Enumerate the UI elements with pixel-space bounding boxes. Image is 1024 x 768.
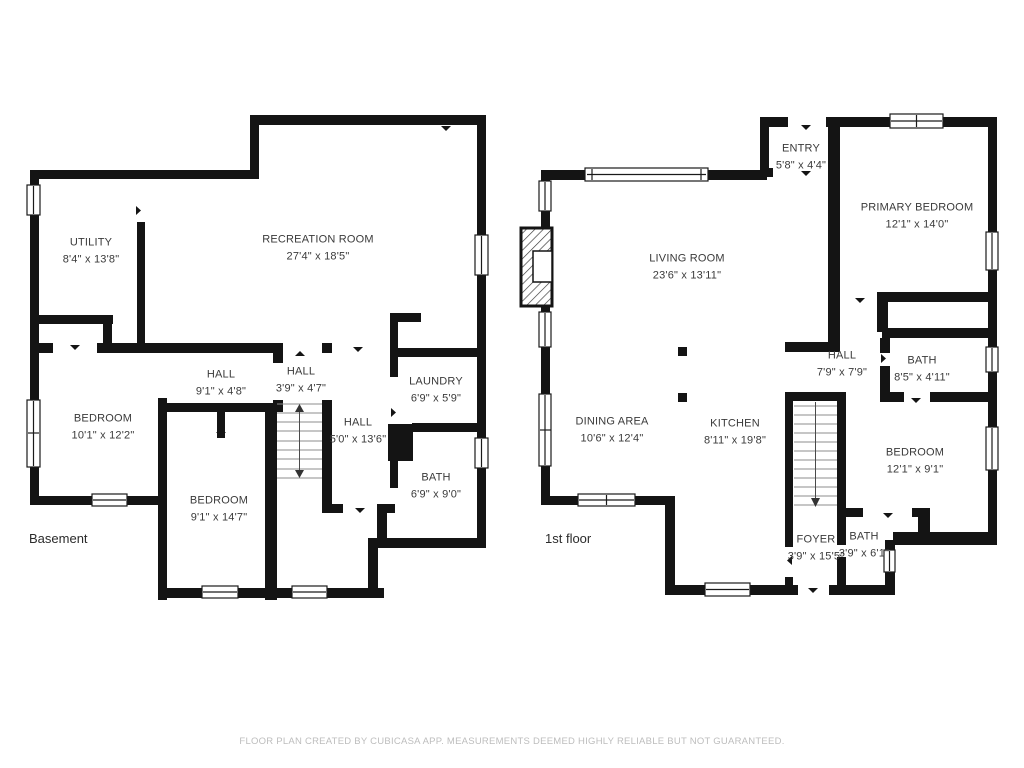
room-name: UTILITY <box>63 235 120 252</box>
room-dimensions: 10'6" x 12'4" <box>575 430 648 447</box>
room-dimensions: 12'1" x 9'1" <box>886 461 944 478</box>
footer-disclaimer: FLOOR PLAN CREATED BY CUBICASA APP. MEAS… <box>0 736 1024 747</box>
room-dimensions: 8'5" x 4'11" <box>894 369 950 386</box>
chimney-block <box>388 424 413 461</box>
room-dimensions: 8'4" x 13'8" <box>63 251 120 268</box>
room-label: HALL5'0" x 13'6" <box>330 415 387 448</box>
room-label: ENTRY5'8" x 4'4" <box>776 141 826 174</box>
room-dimensions: 5'8" x 4'4" <box>776 157 826 174</box>
room-name: HALL <box>196 367 246 384</box>
fireplace <box>521 228 552 306</box>
room-dimensions: 27'4" x 18'5" <box>262 248 374 265</box>
room-name: BEDROOM <box>190 493 248 510</box>
room-dimensions: 9'1" x 14'7" <box>190 509 248 526</box>
room-dimensions: 10'1" x 12'2" <box>72 427 135 444</box>
room-dimensions: 3'9" x 6'1" <box>839 545 889 562</box>
room-name: BATH <box>839 529 889 546</box>
room-label: DINING AREA10'6" x 12'4" <box>575 414 648 447</box>
room-name: BATH <box>894 353 950 370</box>
room-label: BEDROOM9'1" x 14'7" <box>190 493 248 526</box>
room-name: BEDROOM <box>886 445 944 462</box>
room-name: HALL <box>330 415 387 432</box>
room-dimensions: 5'0" x 13'6" <box>330 431 387 448</box>
floor-label-first-floor: 1st floor <box>545 531 591 546</box>
room-dimensions: 3'9" x 4'7" <box>276 380 326 397</box>
room-dimensions: 6'9" x 9'0" <box>411 486 461 503</box>
room-label: LAUNDRY6'9" x 5'9" <box>409 374 463 407</box>
room-name: HALL <box>276 364 326 381</box>
room-name: RECREATION ROOM <box>262 232 374 249</box>
room-dimensions: 23'6" x 13'11" <box>649 267 725 284</box>
room-label: RECREATION ROOM27'4" x 18'5" <box>262 232 374 265</box>
room-label: HALL9'1" x 4'8" <box>196 367 246 400</box>
room-name: LAUNDRY <box>409 374 463 391</box>
room-name: DINING AREA <box>575 414 648 431</box>
room-name: LIVING ROOM <box>649 251 725 268</box>
first-floor-stairs <box>794 402 837 505</box>
stair-arrow-up <box>295 404 304 412</box>
room-label: HALL3'9" x 4'7" <box>276 364 326 397</box>
room-dimensions: 8'11" x 19'8" <box>704 432 766 449</box>
floor-plan-page: UTILITY8'4" x 13'8"RECREATION ROOM27'4" … <box>0 0 1024 768</box>
room-label: KITCHEN8'11" x 19'8" <box>704 416 766 449</box>
stair-arrow-down <box>295 470 304 478</box>
room-label: BATH8'5" x 4'11" <box>894 353 950 386</box>
room-label: BATH6'9" x 9'0" <box>411 470 461 503</box>
stair-arrow-down <box>811 498 820 507</box>
floor-plan-canvas <box>0 0 1024 768</box>
room-dimensions: 12'1" x 14'0" <box>861 216 974 233</box>
floor-label-basement: Basement <box>29 531 88 546</box>
room-name: KITCHEN <box>704 416 766 433</box>
room-label: FOYER3'9" x 15'5" <box>788 532 845 565</box>
room-name: ENTRY <box>776 141 826 158</box>
room-label: HALL7'9" x 7'9" <box>817 348 867 381</box>
room-label: LIVING ROOM23'6" x 13'11" <box>649 251 725 284</box>
room-label: BEDROOM12'1" x 9'1" <box>886 445 944 478</box>
room-label: BEDROOM10'1" x 12'2" <box>72 411 135 444</box>
room-name: PRIMARY BEDROOM <box>861 200 974 217</box>
room-dimensions: 7'9" x 7'9" <box>817 364 867 381</box>
room-label: PRIMARY BEDROOM12'1" x 14'0" <box>861 200 974 233</box>
room-name: BEDROOM <box>72 411 135 428</box>
room-name: BATH <box>411 470 461 487</box>
room-label: BATH3'9" x 6'1" <box>839 529 889 562</box>
room-name: HALL <box>817 348 867 365</box>
room-name: FOYER <box>788 532 845 549</box>
room-dimensions: 9'1" x 4'8" <box>196 383 246 400</box>
basement-walls <box>30 115 486 600</box>
room-label: UTILITY8'4" x 13'8" <box>63 235 120 268</box>
basement-stairs <box>277 404 322 478</box>
room-dimensions: 6'9" x 5'9" <box>409 390 463 407</box>
room-dimensions: 3'9" x 15'5" <box>788 548 845 565</box>
